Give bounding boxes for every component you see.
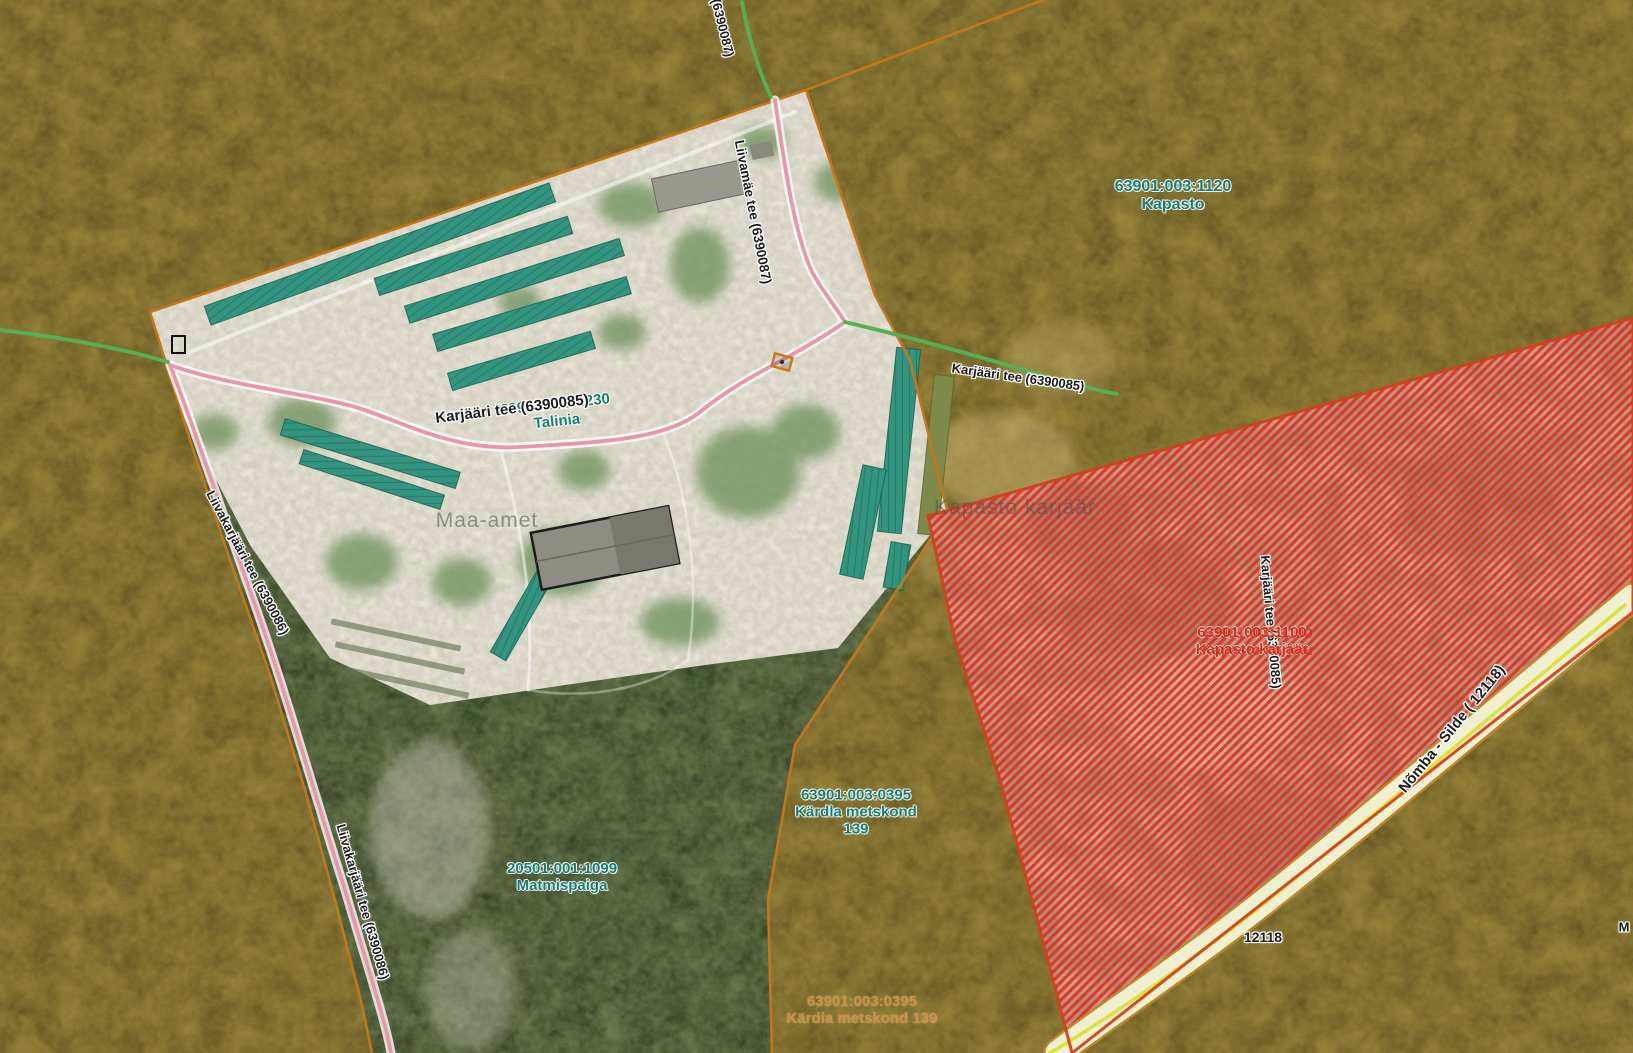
address-code: 63901:003:0395 <box>787 993 938 1010</box>
address-name: Kärdla metskond 139 <box>787 1010 938 1027</box>
parcel-label-kardla-metskond: 63901:003:0395 Kärdla metskond 139 <box>795 786 917 837</box>
road-label-edge-fragment: M <box>1619 921 1630 936</box>
parcel-label-matmispaiga: 20501:001:1099 Matmispaiga <box>507 860 617 894</box>
parcel-label-kapasto: 63901:003:1120 Kapasto <box>1115 178 1232 214</box>
site-marker <box>772 353 793 370</box>
parcel-code: 63901:003:1100 <box>1196 624 1309 641</box>
maa-amet-watermark: Maa-amet <box>436 509 539 533</box>
parcel-name: Kapasto karjäär <box>1196 641 1309 658</box>
parcel-name: Kapasto <box>1115 196 1232 214</box>
address-label-kardla-metskond: 63901:003:0395 Kärdla metskond 139 <box>787 993 938 1027</box>
parcel-name: Kärdla metskond <box>795 803 917 820</box>
parcel-number: 139 <box>795 821 917 838</box>
parcel-code: 63901:003:1120 <box>1115 178 1232 196</box>
quarry-name-watermark: Kapasto karjäär <box>934 496 1096 520</box>
parcel-label-kapasto-karjaar-selected: 63901:003:1100 Kapasto karjäär <box>1196 624 1309 658</box>
cadastral-map-viewport[interactable]: Maa-amet Kapasto karjäär (6390087) Liiva… <box>0 0 1633 1053</box>
road-label-nomba-code: 12118 <box>1244 930 1282 946</box>
parcel-code: 20501:001:1099 <box>507 860 617 877</box>
parcel-code: 63901:003:0395 <box>795 786 917 803</box>
parcel-name: Matmispaiga <box>507 877 617 894</box>
map-canvas <box>0 0 1633 1053</box>
